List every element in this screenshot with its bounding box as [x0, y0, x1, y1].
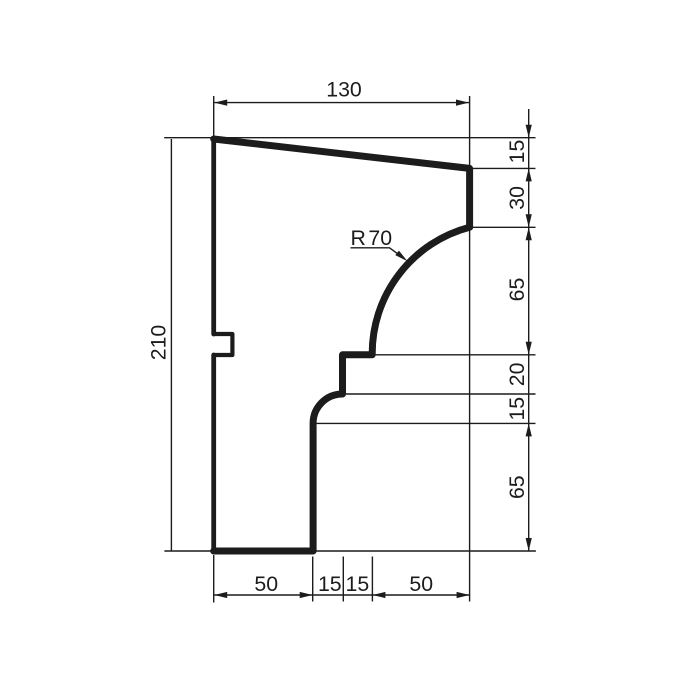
svg-text:30: 30	[505, 186, 529, 210]
svg-text:50: 50	[409, 572, 433, 596]
svg-text:15: 15	[318, 572, 342, 596]
svg-text:210: 210	[146, 325, 170, 361]
svg-text:65: 65	[505, 475, 529, 499]
svg-text:15: 15	[505, 140, 529, 164]
svg-text:65: 65	[505, 278, 529, 302]
svg-text:50: 50	[254, 572, 278, 596]
svg-text:130: 130	[326, 77, 362, 101]
svg-text:20: 20	[505, 362, 529, 386]
svg-text:15: 15	[505, 397, 529, 421]
svg-text:R70: R70	[351, 226, 393, 250]
svg-text:15: 15	[346, 572, 370, 596]
